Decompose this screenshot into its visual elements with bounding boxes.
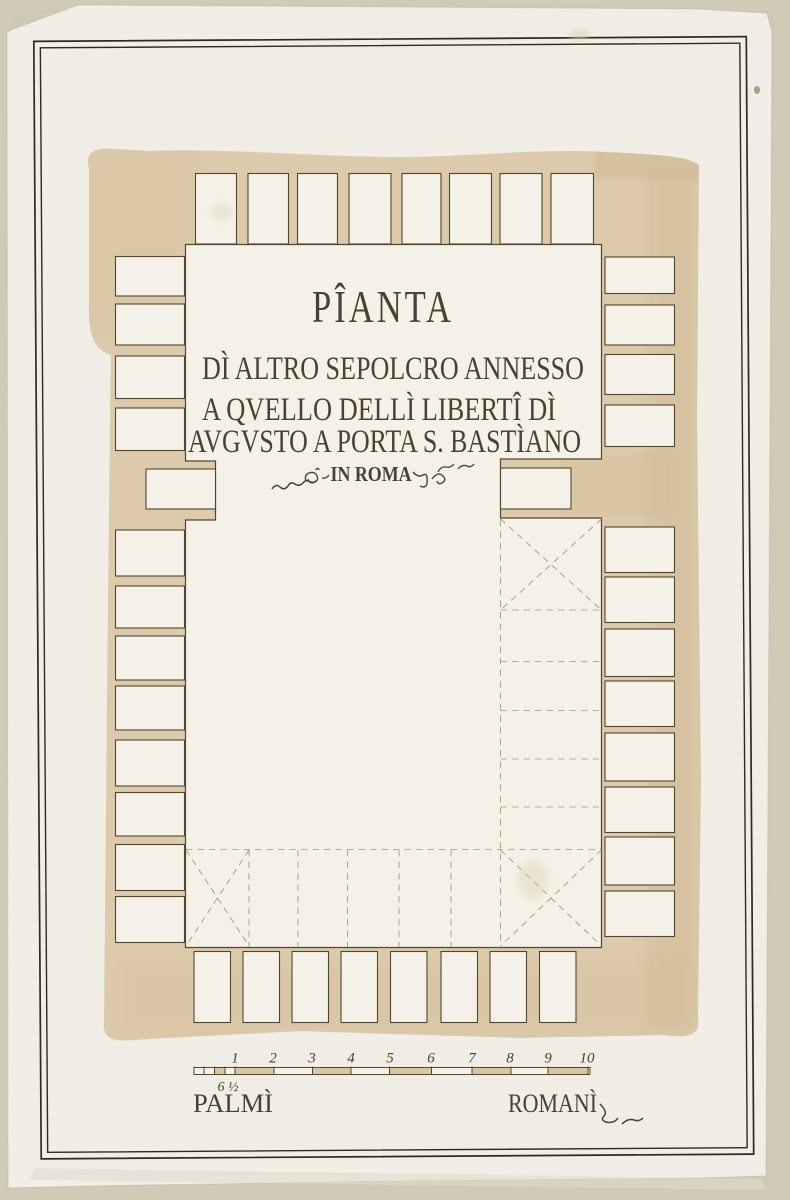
svg-text:10: 10 [580, 1051, 596, 1067]
svg-text:5: 5 [386, 1051, 394, 1067]
svg-text:A QVELLO DELLÌ LIBERTÎ DÌ: A QVELLO DELLÌ LIBERTÎ DÌ [202, 391, 556, 428]
svg-text:9: 9 [544, 1051, 552, 1067]
svg-text:PALMÌ: PALMÌ [193, 1089, 273, 1118]
svg-text:DÌ ALTRO SEPOLCRO ANNESSO: DÌ ALTRO SEPOLCRO ANNESSO [202, 350, 584, 387]
svg-text:1: 1 [231, 1051, 239, 1067]
svg-text:2: 2 [269, 1051, 277, 1067]
svg-text:IN ROMA: IN ROMA [331, 462, 413, 486]
svg-text:6: 6 [427, 1051, 435, 1067]
svg-text:ROMANÌ: ROMANÌ [508, 1089, 597, 1118]
svg-text:AVGVSTO A PORTA S. BASTÌANO: AVGVSTO A PORTA S. BASTÌANO [188, 423, 581, 460]
svg-text:8: 8 [506, 1051, 514, 1067]
svg-text:4: 4 [347, 1051, 355, 1067]
svg-text:PÎANTA: PÎANTA [312, 281, 454, 332]
svg-text:3: 3 [307, 1051, 316, 1067]
